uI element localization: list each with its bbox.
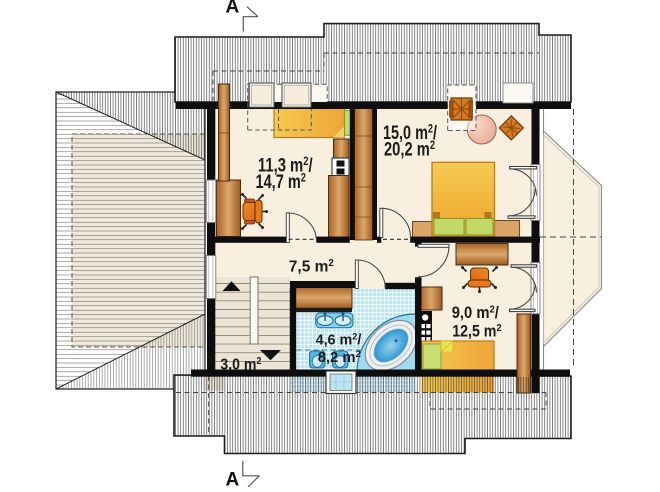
svg-text:A: A (226, 470, 240, 488)
svg-text:12,5 m2: 12,5 m2 (452, 322, 501, 341)
svg-text:14,7 m2: 14,7 m2 (256, 171, 307, 194)
svg-text:8,2 m2: 8,2 m2 (318, 349, 361, 366)
svg-text:A: A (226, 0, 240, 17)
svg-text:3,0 m2: 3,0 m2 (220, 356, 261, 374)
svg-text:7,5 m2: 7,5 m2 (289, 258, 334, 276)
svg-text:20,2 m2: 20,2 m2 (384, 138, 435, 161)
